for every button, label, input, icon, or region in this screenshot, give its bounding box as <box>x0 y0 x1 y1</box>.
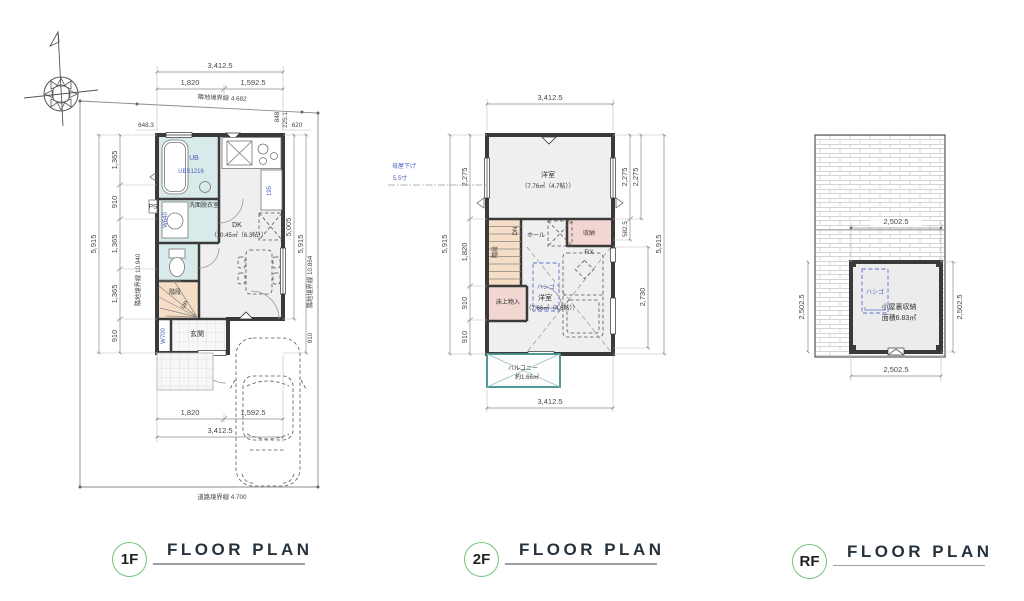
f1-dim-top-total: 3,412.5 <box>207 61 232 70</box>
f2-dim-left-2: 1,820 <box>460 243 469 262</box>
title-2f: 2F FLOOR PLAN <box>464 540 665 577</box>
f2-label-ladder: ハシゴ <box>537 283 555 291</box>
floor-plan-2f: 3,412.5 2,275 1,820 910 910 5,915 母屋下げ 5… <box>388 93 667 412</box>
f1-label-dk: DK <box>232 222 242 229</box>
title-1f: 1F FLOOR PLAN <box>112 540 313 577</box>
f1-dim-bottom-left: 1,820 <box>181 408 200 417</box>
floor-plan-drawing: 3,412.5 1,820 1,592.5 隣地境界線 4.682 648.3 … <box>0 0 1024 601</box>
floor-plan-sheet: 3,412.5 1,820 1,592.5 隣地境界線 4.682 648.3 … <box>0 0 1024 601</box>
badge-1f-text: 1F <box>121 551 139 568</box>
f2-dim-right-2275a: 2,275 <box>620 168 629 187</box>
f2-label-closet: 収納 <box>583 229 595 237</box>
badge-rf-text: RF <box>800 553 820 570</box>
f2-building <box>477 135 623 357</box>
f1-dim-620: 620 <box>292 122 303 129</box>
f1-label-fridge-w: 195 <box>267 185 273 196</box>
badge-2f-text: 2F <box>473 551 491 568</box>
f2-dim-right-2275b: 2,275 <box>631 168 640 187</box>
f1-dim-bottom-right: 1,592.5 <box>240 408 265 417</box>
f1-label-dk-area: （10.45㎡（6.3帖）） <box>211 231 267 239</box>
f1-label-ub: UB <box>189 155 199 162</box>
floor-plan-rf: 2,502.5 2,502.5 2,502.5 2,502.5 小屋裏収納 面積… <box>797 135 964 381</box>
f1-label-ps: PS <box>149 205 157 211</box>
title-rf: RF FLOOR PLAN <box>792 542 993 579</box>
f1-dim-left-5: 910 <box>110 330 119 343</box>
f1-label-washer: W640 <box>163 212 169 228</box>
f1-boundary-bottom-label: 道路境界線 4.700 <box>198 492 247 501</box>
f1-dim-225: 225.1 <box>282 112 289 128</box>
f1-boundary-top-label: 隣地境界線 4.682 <box>197 92 247 103</box>
rf-dim-top: 2,502.5 <box>883 217 908 226</box>
f1-dim-648: 648.3 <box>138 122 154 129</box>
f1-dim-left-4: 1,365 <box>110 285 119 304</box>
f2-dim-left-outer: 5,915 <box>440 235 449 254</box>
f1-dim-top-left: 1,820 <box>181 78 200 87</box>
f1-dim-bottom-total: 3,412.5 <box>207 426 232 435</box>
f1-dim-left-3: 1,365 <box>110 235 119 254</box>
f1-boundary-right-label: 隣地境界線 10.864 <box>305 255 314 308</box>
f2-moya-label-2: 5.5寸 <box>393 174 407 182</box>
f2-label-room1-area: （7.76㎡（4.7帖）） <box>521 182 574 190</box>
f1-dim-left-1: 1,365 <box>110 151 119 170</box>
f2-dim-right-outer: 5,915 <box>654 235 663 254</box>
f2-label-floor-storage: 床上物入 <box>496 298 520 306</box>
rf-label-attic: 小屋裏収納 <box>882 302 917 311</box>
north-arrow-compass <box>24 32 98 126</box>
f1-dim-right-910: 910 <box>307 332 314 343</box>
f2-label-stairs: 階段 <box>491 246 499 258</box>
title-rf-rule <box>833 565 985 566</box>
f2-label-dn: DN <box>513 227 519 236</box>
toilet-icon <box>169 249 185 277</box>
f1-dim-848: 848 <box>274 111 281 122</box>
f1-label-stairs: 階段 <box>169 288 181 296</box>
porch-tiles <box>157 353 213 390</box>
f2-label-hall: ホール <box>527 232 545 239</box>
f1-boundary-left-label: 隣地境界線 10.940 <box>133 253 142 306</box>
f1-dim-left-2: 910 <box>110 196 119 209</box>
f2-dim-bottom-total: 3,412.5 <box>537 397 562 406</box>
rf-dim-right: 2,502.5 <box>955 294 964 319</box>
f2-dim-left-3: 910 <box>460 297 469 310</box>
title-2f-rule <box>505 563 657 565</box>
f1-label-shoe-closet: W700 <box>161 328 167 344</box>
f1-label-entrance: 玄関 <box>190 329 204 338</box>
f2-label-room1: 洋室 <box>541 170 555 179</box>
f2-moya-label-1: 母屋下げ <box>392 162 416 170</box>
f2-label-balcony: バルコニー <box>508 365 538 372</box>
f1-dim-left-outer: 5,915 <box>89 235 98 254</box>
f2-dim-top-total: 3,412.5 <box>537 93 562 102</box>
f2-label-fix: FIX <box>584 250 593 256</box>
title-1f-rule <box>153 563 305 565</box>
title-2f-label: FLOOR PLAN <box>505 540 665 560</box>
badge-1f: 1F <box>112 542 147 577</box>
f1-label-washroom: 洗面脱衣室 <box>189 201 219 209</box>
floor-plan-1f: 3,412.5 1,820 1,592.5 隣地境界線 4.682 648.3 … <box>79 61 320 501</box>
f1-label-ub-model: UBS1216 <box>178 169 204 175</box>
f2-dim-left-4: 910 <box>460 331 469 344</box>
title-1f-label: FLOOR PLAN <box>153 540 313 560</box>
title-rf-label: FLOOR PLAN <box>833 542 993 562</box>
f2-dim-right-582: 582.5 <box>622 221 629 237</box>
f1-dim-right-outer: 5,915 <box>296 235 305 254</box>
rf-dim-left: 2,502.5 <box>797 294 806 319</box>
f2-dim-right-2730: 2,730 <box>638 288 647 307</box>
f2-label-balcony-area: 約1.66㎡ <box>515 373 539 381</box>
rf-dim-bottom: 2,502.5 <box>883 365 908 374</box>
f1-dim-top-right: 1,592.5 <box>240 78 265 87</box>
badge-2f: 2F <box>464 542 499 577</box>
f2-label-room2-area: （7.66㎡（4.6帖）） <box>525 304 578 312</box>
rf-label-ladder: ハシゴ <box>866 288 884 296</box>
f2-label-room2: 洋室 <box>538 293 552 302</box>
f1-dim-5005: 5,005 <box>284 218 293 237</box>
badge-rf: RF <box>792 544 827 579</box>
rf-label-attic-area: 面積6.83㎡ <box>882 313 917 322</box>
f2-dim-left-1: 2,275 <box>460 168 469 187</box>
